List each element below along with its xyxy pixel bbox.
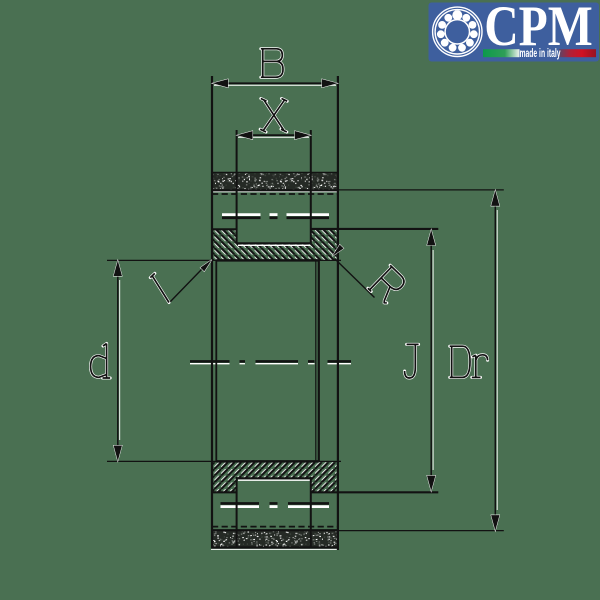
- svg-text:made in italy: made in italy: [520, 48, 561, 60]
